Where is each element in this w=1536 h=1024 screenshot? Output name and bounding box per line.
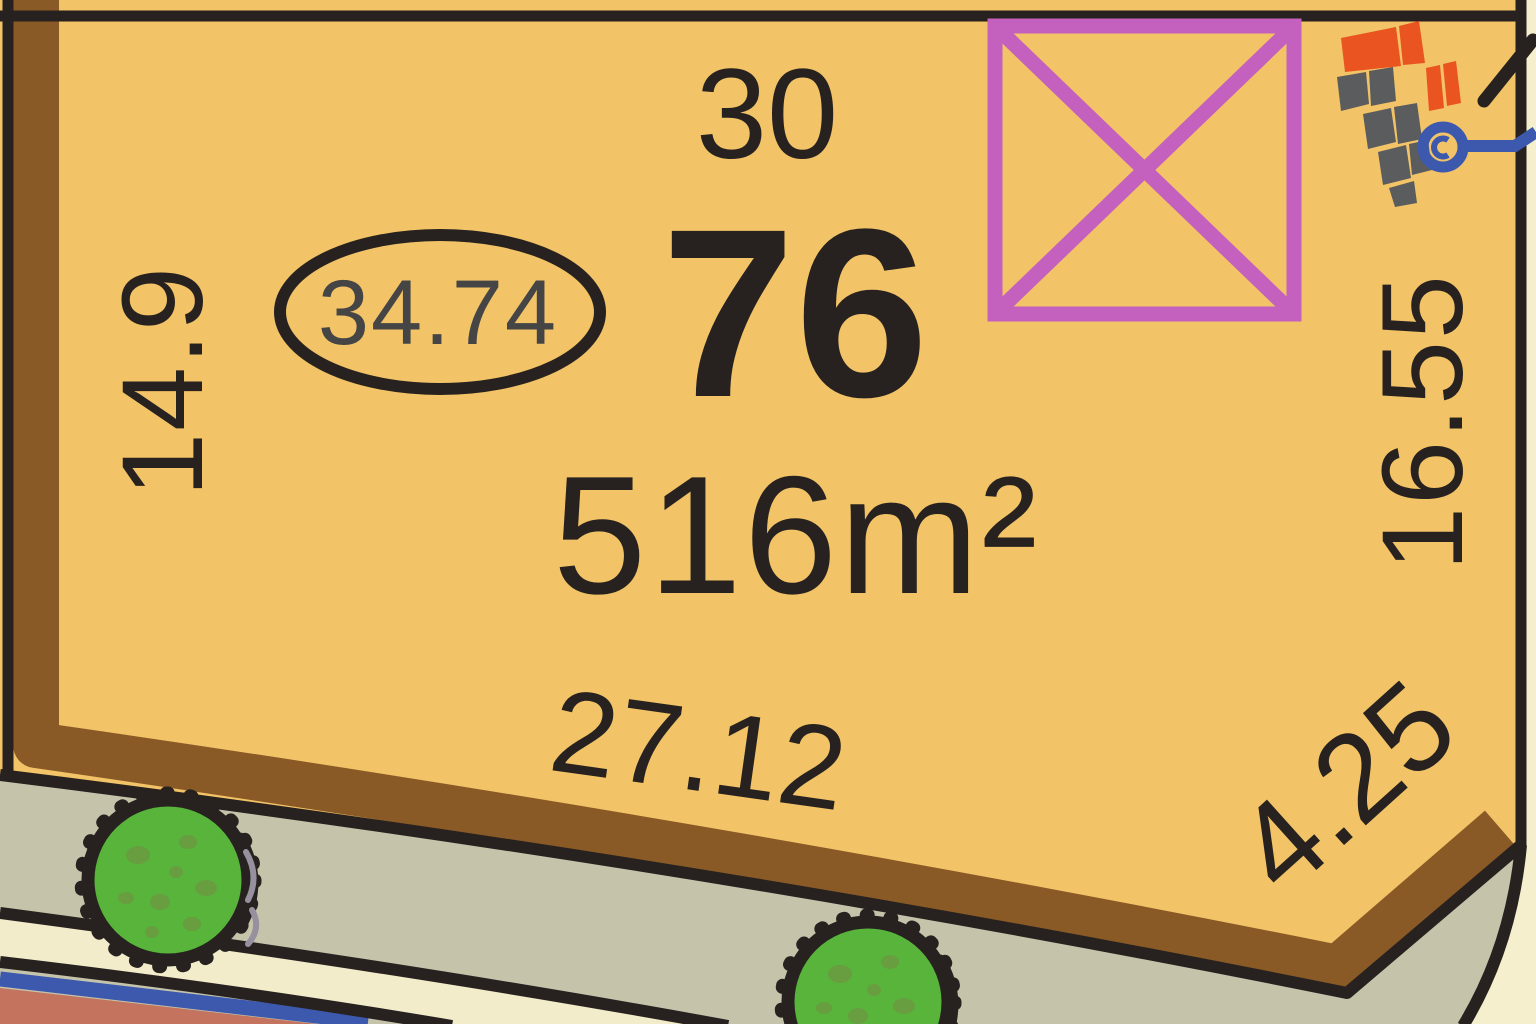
dim-circled-label: 34.74	[318, 262, 558, 364]
lot-plan-canvas: 30 76 516m² 34.74 14.9 16.55 27.12 4.25	[0, 0, 1536, 1024]
masterplan-viewport: 30 76 516m² 34.74 14.9 16.55 27.12 4.25	[0, 0, 1536, 1024]
dim-right-label: 16.55	[1359, 273, 1487, 571]
lot-area-label: 516m²	[553, 441, 1039, 629]
tree-foliage	[88, 800, 248, 960]
street-tree-icon	[81, 793, 255, 967]
dim-top-label: 30	[696, 43, 838, 186]
lot-number-label: 76	[662, 179, 929, 447]
tree-foliage	[788, 922, 948, 1024]
dim-left-label: 14.9	[99, 265, 227, 497]
